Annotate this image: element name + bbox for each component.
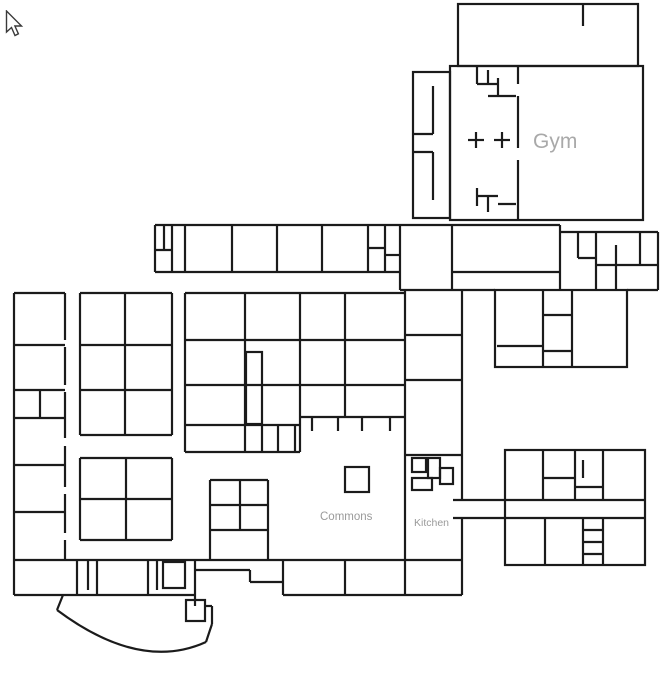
wall-rect — [163, 562, 185, 588]
wall-rect — [440, 468, 453, 484]
wall-curve — [57, 610, 206, 652]
wall-rect — [412, 478, 432, 490]
wall-rect — [458, 4, 638, 66]
wall-line — [57, 595, 63, 610]
wall-rect — [413, 72, 450, 218]
wall-rect — [428, 458, 440, 478]
mouse-cursor-icon — [5, 10, 27, 40]
kitchen-label: Kitchen — [414, 517, 449, 529]
floorplan-svg — [0, 0, 672, 675]
wall-rect — [412, 458, 426, 472]
wall-rect — [345, 467, 369, 492]
wall-line — [206, 624, 212, 642]
floorplan-app: { "area_labels": { "gym": "Gym", "common… — [0, 0, 672, 675]
gym-label: Gym — [533, 130, 577, 154]
commons-label: Commons — [320, 511, 372, 523]
wall-rect — [495, 290, 627, 367]
wall-rect — [246, 352, 262, 424]
